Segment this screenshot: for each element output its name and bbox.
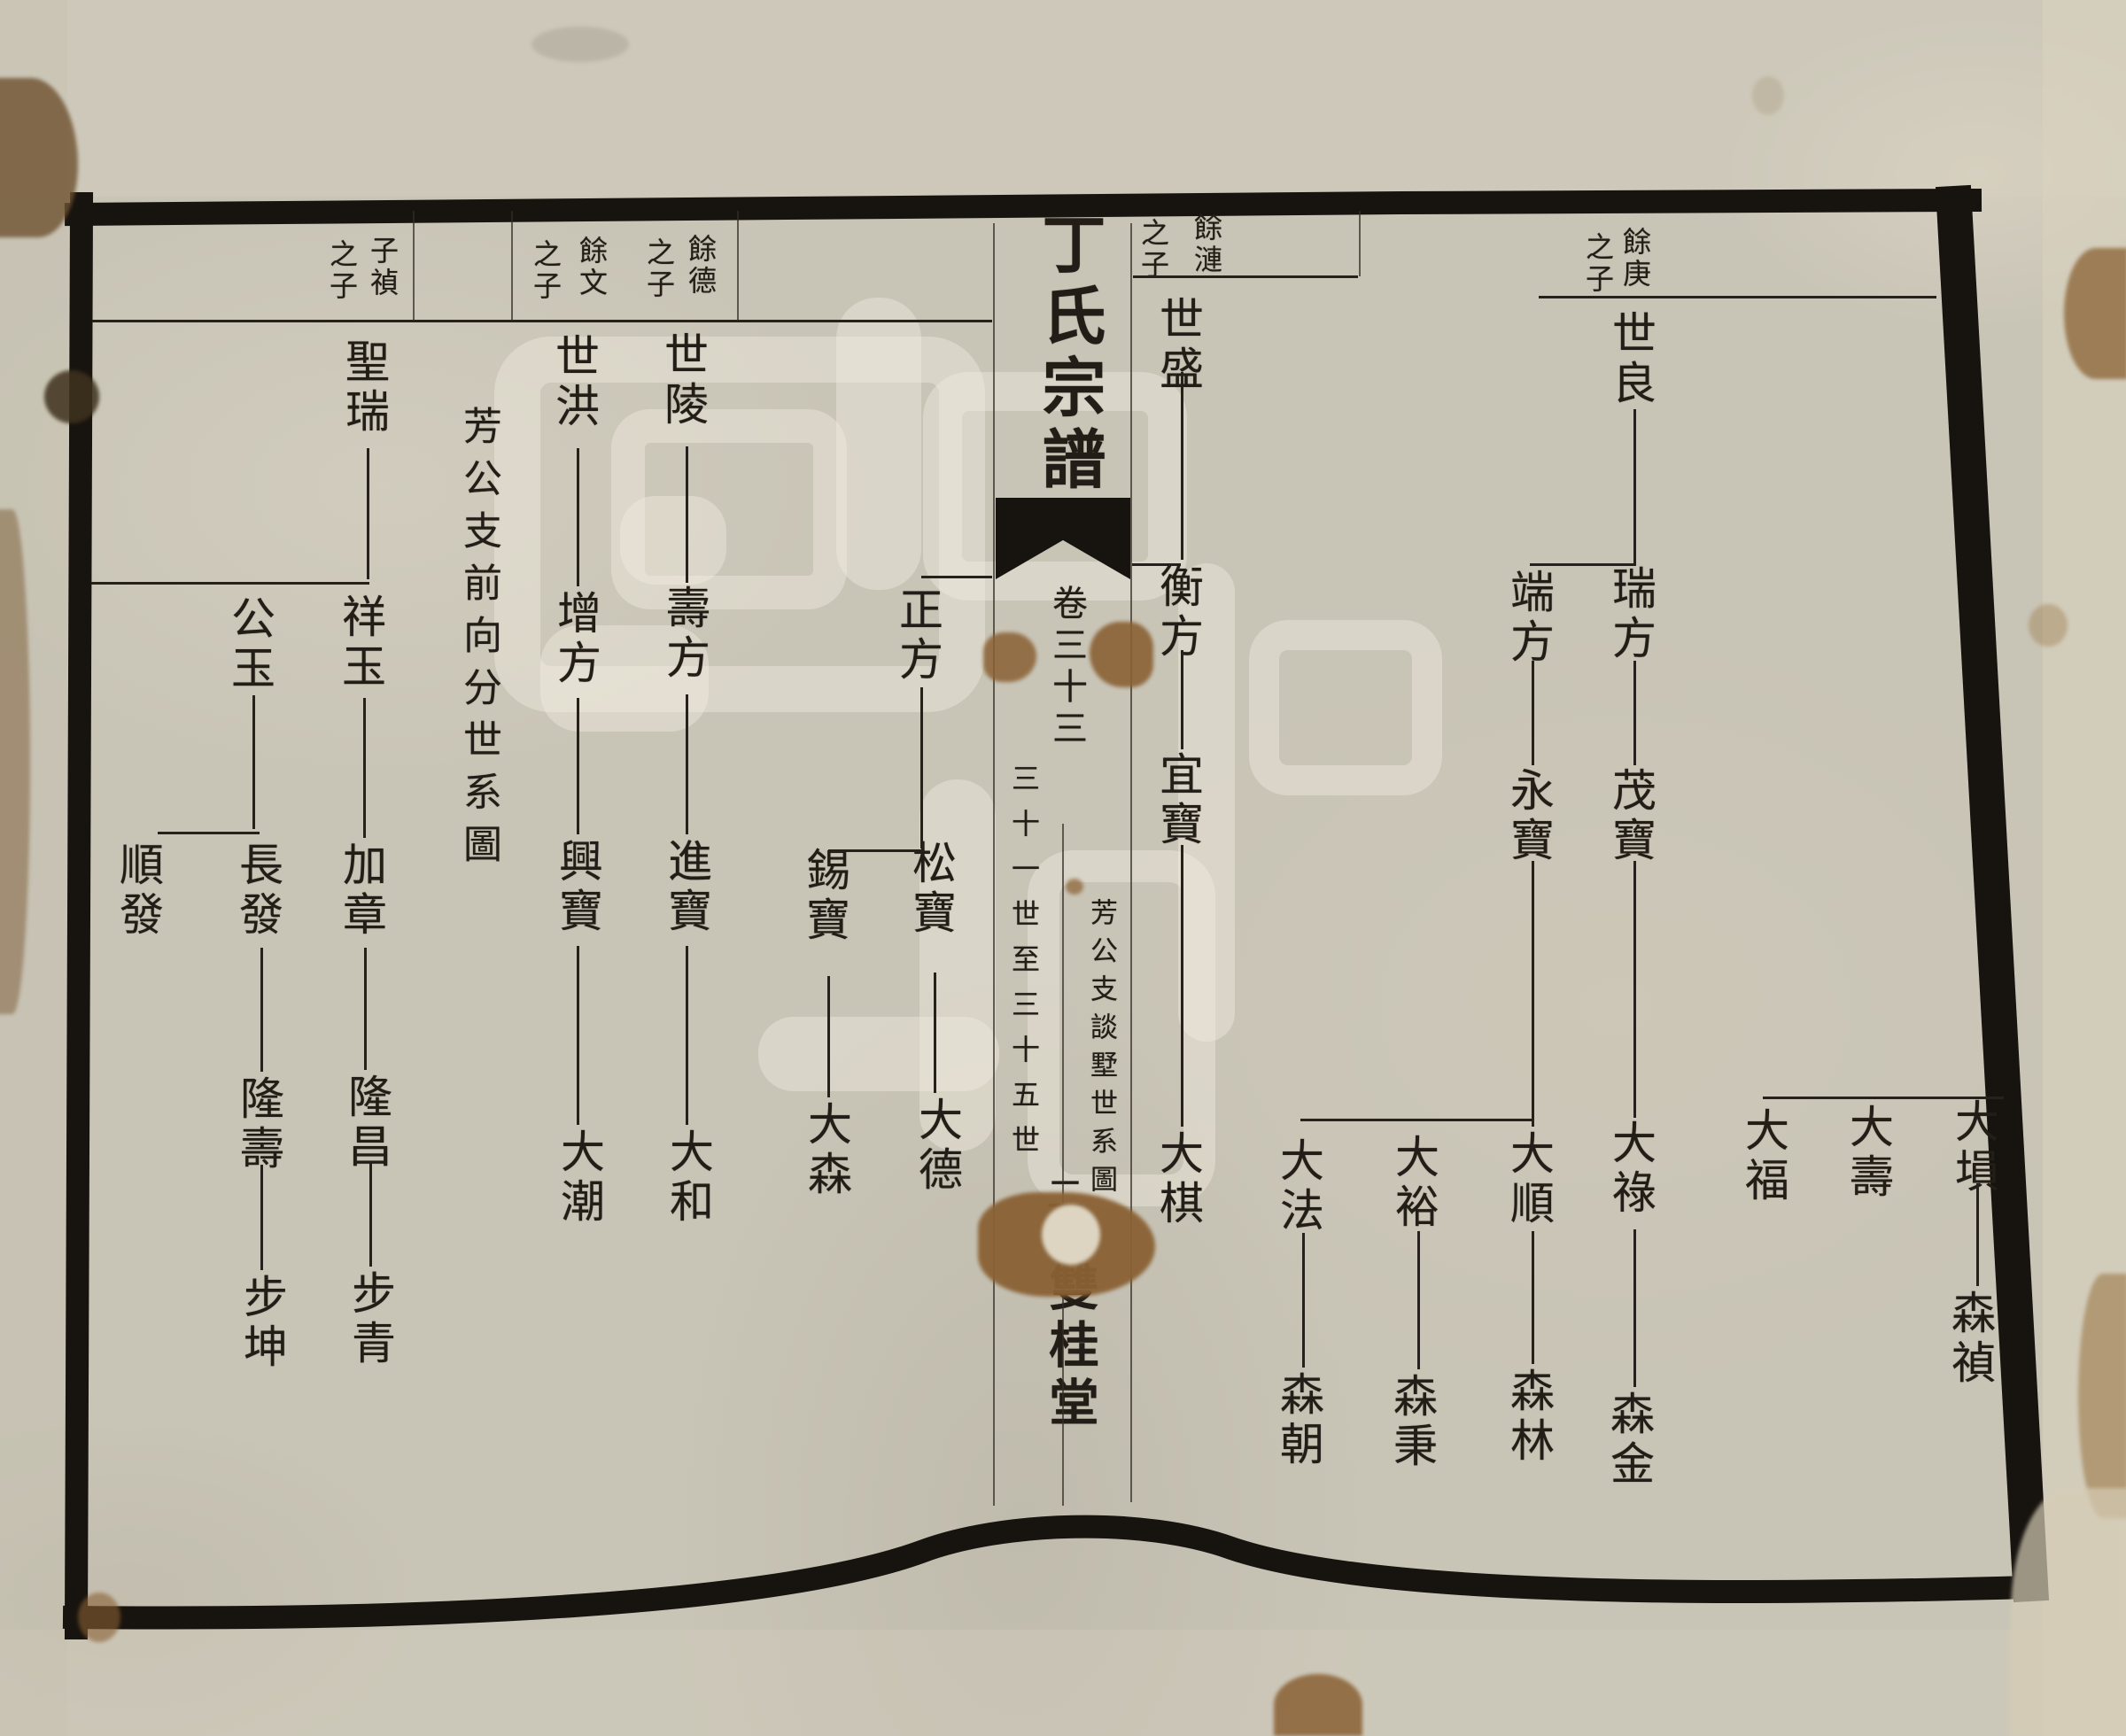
fold-divider-line bbox=[511, 211, 513, 321]
descent-line bbox=[1633, 661, 1636, 765]
spine-book-title: 丁氏宗譜 bbox=[1026, 211, 1100, 516]
person-name: 世良 bbox=[1609, 310, 1653, 409]
connector-line bbox=[1539, 296, 1936, 298]
descent-line bbox=[920, 687, 923, 849]
descent-line bbox=[577, 946, 579, 1125]
descent-line bbox=[827, 976, 830, 1097]
stain-blemish bbox=[2078, 1274, 2126, 1518]
person-name: 大德 bbox=[915, 1097, 959, 1196]
stain-blemish bbox=[1090, 622, 1153, 687]
spine-page-number: 二 bbox=[1042, 1174, 1081, 1215]
spine-generation-range: 三十一世至三十五世 bbox=[1006, 763, 1038, 1189]
connector-line bbox=[828, 849, 923, 852]
person-name: 隆昌 bbox=[345, 1073, 389, 1173]
person-name: 瑞方 bbox=[1609, 565, 1653, 664]
person-name: 森林 bbox=[1507, 1368, 1551, 1467]
connector-line bbox=[1763, 1097, 2004, 1099]
stain-blemish bbox=[531, 27, 629, 62]
descent-line bbox=[367, 448, 369, 579]
spine-branch-chart-title: 芳公支談墅世系圖 bbox=[1084, 898, 1114, 1210]
person-name: 進寶 bbox=[664, 838, 709, 937]
person-name: 大祿 bbox=[1609, 1120, 1653, 1219]
person-name: 加章 bbox=[339, 841, 384, 941]
fold-divider-line bbox=[993, 223, 995, 1506]
person-name: 宜寶 bbox=[1156, 751, 1200, 850]
person-name: 大棋 bbox=[1156, 1130, 1200, 1229]
connector-line bbox=[1133, 275, 1358, 278]
connector-line bbox=[91, 582, 369, 585]
descent-line bbox=[934, 973, 936, 1093]
descent-line bbox=[1633, 409, 1636, 563]
header-father-name: 餘文 bbox=[578, 236, 606, 299]
descent-line bbox=[1532, 1231, 1534, 1364]
fishtail-ornament bbox=[996, 498, 1130, 579]
paper-margin-bottom bbox=[0, 1630, 2126, 1736]
stain-blemish bbox=[1066, 879, 1083, 895]
person-name: 衡方 bbox=[1156, 563, 1200, 663]
person-name: 大塤 bbox=[1951, 1098, 1996, 1197]
header-father-name: 餘漣 bbox=[1192, 213, 1221, 276]
fold-divider-line bbox=[413, 211, 415, 321]
left-page-chart-label: 芳公支前向分世系圖 bbox=[454, 406, 498, 902]
person-name: 順發 bbox=[116, 841, 160, 941]
person-name: 世洪 bbox=[552, 333, 596, 432]
stain-blemish bbox=[0, 509, 30, 1014]
connector-line bbox=[158, 832, 260, 834]
descent-line bbox=[1976, 1183, 1979, 1286]
person-name: 增方 bbox=[554, 590, 598, 689]
stain-blemish bbox=[2029, 604, 2068, 647]
header-suffix: 之子 bbox=[328, 239, 356, 303]
descent-line bbox=[260, 1165, 263, 1270]
stain-blemish bbox=[1752, 76, 1784, 115]
stain-blemish bbox=[0, 78, 78, 237]
person-name: 正方 bbox=[896, 586, 940, 686]
paper-margin-top bbox=[0, 0, 2126, 197]
person-name: 步坤 bbox=[240, 1274, 284, 1373]
person-name: 永寶 bbox=[1507, 767, 1551, 866]
watermark-shape bbox=[836, 298, 921, 590]
spine-volume-label: 卷三十三 bbox=[1042, 585, 1084, 762]
connector-line bbox=[1132, 563, 1181, 566]
person-name: 長發 bbox=[236, 841, 280, 941]
header-suffix: 之子 bbox=[1584, 232, 1612, 296]
descent-line bbox=[1302, 1233, 1305, 1368]
header-father-name: 餘庚 bbox=[1621, 227, 1649, 291]
person-name: 松寶 bbox=[909, 840, 953, 939]
scanned-genealogy-page: 丁氏宗譜 卷三十三 三十一世至三十五世 芳公支談墅世系圖 二 雙桂堂 芳公支前向… bbox=[0, 0, 2126, 1736]
descent-line bbox=[1181, 372, 1183, 560]
descent-line bbox=[686, 694, 688, 834]
person-name: 森金 bbox=[1607, 1391, 1651, 1490]
descent-line bbox=[577, 698, 579, 834]
header-suffix: 之子 bbox=[531, 239, 560, 303]
connector-line bbox=[92, 320, 992, 322]
person-name: 森秉 bbox=[1390, 1373, 1434, 1472]
descent-line bbox=[686, 946, 688, 1125]
person-name: 大潮 bbox=[557, 1128, 601, 1228]
watermark-shape bbox=[919, 779, 996, 1151]
fold-divider-line bbox=[1130, 223, 1132, 1502]
connector-line bbox=[921, 576, 992, 578]
stain-blemish bbox=[78, 1593, 120, 1642]
fold-divider-line bbox=[1062, 824, 1064, 1506]
stain-blemish bbox=[2011, 1488, 2126, 1736]
person-name: 祥玉 bbox=[338, 593, 383, 693]
descent-line bbox=[252, 695, 255, 829]
descent-line bbox=[1181, 845, 1183, 1127]
person-name: 森朝 bbox=[1276, 1371, 1321, 1470]
watermark-shape bbox=[611, 409, 847, 609]
paper-margin-left bbox=[0, 0, 67, 1736]
descent-line bbox=[1417, 1231, 1420, 1369]
stain-blemish bbox=[983, 632, 1036, 682]
person-name: 大福 bbox=[1742, 1107, 1786, 1206]
fold-divider-line bbox=[737, 211, 739, 321]
header-father-name: 子禎 bbox=[369, 236, 397, 299]
person-name: 世盛 bbox=[1156, 296, 1200, 395]
person-name: 茂寶 bbox=[1609, 767, 1653, 866]
descent-line bbox=[364, 948, 367, 1070]
connector-line bbox=[1530, 563, 1636, 566]
person-name: 森禎 bbox=[1948, 1290, 1992, 1389]
spine-hall-name: 雙桂堂 bbox=[1038, 1261, 1095, 1447]
person-name: 大順 bbox=[1507, 1130, 1551, 1229]
person-name: 大法 bbox=[1276, 1137, 1321, 1236]
person-name: 世陵 bbox=[661, 331, 705, 430]
descent-line bbox=[369, 1162, 372, 1267]
connector-line bbox=[1300, 1119, 1533, 1121]
descent-line bbox=[1633, 861, 1636, 1118]
person-name: 壽方 bbox=[663, 585, 707, 684]
person-name: 大和 bbox=[666, 1128, 710, 1228]
descent-line bbox=[1532, 661, 1534, 765]
stain-blemish bbox=[2064, 248, 2126, 379]
person-name: 公玉 bbox=[228, 595, 272, 694]
watermark-shape bbox=[758, 1017, 999, 1091]
person-name: 端方 bbox=[1507, 569, 1551, 668]
descent-line bbox=[686, 446, 688, 583]
person-name: 大森 bbox=[804, 1101, 849, 1200]
watermark-shape bbox=[1249, 620, 1442, 795]
paper-margin-right bbox=[2043, 0, 2126, 1736]
descent-line bbox=[1532, 861, 1534, 1127]
descent-line bbox=[363, 698, 366, 838]
descent-line bbox=[577, 448, 579, 586]
person-name: 隆壽 bbox=[237, 1075, 281, 1174]
person-name: 大裕 bbox=[1392, 1134, 1436, 1233]
header-suffix: 之子 bbox=[1139, 218, 1168, 282]
descent-line bbox=[260, 948, 263, 1072]
person-name: 大壽 bbox=[1846, 1104, 1890, 1203]
person-name: 步青 bbox=[348, 1270, 392, 1369]
person-name: 興寶 bbox=[555, 838, 600, 937]
stain-blemish bbox=[44, 370, 99, 423]
stain-blemish bbox=[1274, 1674, 1362, 1736]
person-name: 聖瑞 bbox=[342, 338, 386, 438]
person-name: 錫寶 bbox=[803, 847, 847, 946]
fold-divider-line bbox=[1359, 211, 1361, 276]
header-father-name: 餘德 bbox=[687, 234, 715, 298]
descent-line bbox=[1181, 650, 1183, 749]
descent-line bbox=[1633, 1229, 1636, 1387]
header-suffix: 之子 bbox=[645, 237, 673, 301]
watermark-shape bbox=[620, 496, 726, 585]
